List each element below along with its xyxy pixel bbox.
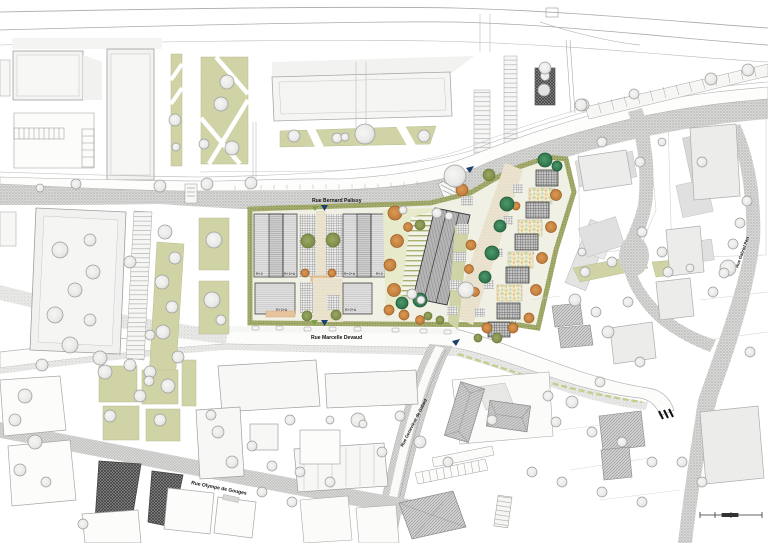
svg-text:R+2+A: R+2+A bbox=[284, 272, 296, 276]
svg-text:R+2+A: R+2+A bbox=[344, 272, 356, 276]
svg-text:R+2: R+2 bbox=[256, 272, 263, 276]
svg-text:R+2+A: R+2+A bbox=[345, 308, 357, 312]
svg-text:Rue Bernard Palissy: Rue Bernard Palissy bbox=[312, 198, 362, 204]
svg-text:Rue Marcelle Devaud: Rue Marcelle Devaud bbox=[311, 335, 362, 341]
svg-text:R+2: R+2 bbox=[376, 272, 383, 276]
svg-text:R+2+A: R+2+A bbox=[276, 308, 288, 312]
